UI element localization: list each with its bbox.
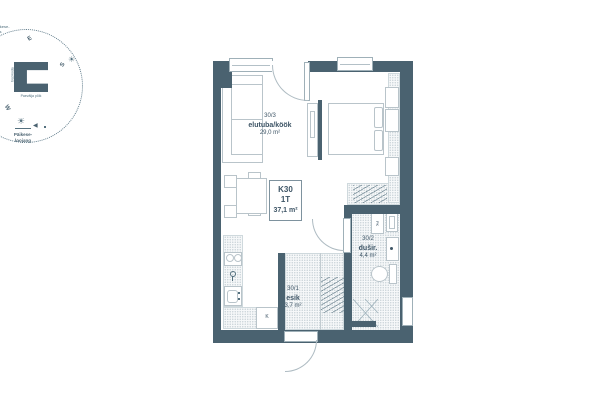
sunrise-label: Päikese- tõus [0, 24, 20, 34]
room-name: dušir. [348, 244, 388, 253]
sink-tap-dot [238, 298, 240, 300]
bath-cabinet-inner [389, 216, 395, 229]
stove-burner [226, 254, 234, 262]
room-number: 30/3 [238, 113, 302, 121]
hall-label: 30/1 esik 3,7 m² [271, 286, 315, 311]
horizon-line [15, 128, 31, 129]
wall-tv-stub [318, 100, 322, 160]
fridge-label: K [256, 314, 278, 321]
bathroom-door-swing-arc [312, 219, 344, 251]
bath-sink-tap [390, 247, 393, 250]
wardrobe-cabinet [385, 87, 399, 108]
arrow-trail-dot [44, 126, 46, 128]
kitchen-faucet-icon [230, 271, 236, 277]
toilet-tank [389, 264, 397, 284]
room-name: esik [271, 294, 315, 303]
pillow [374, 107, 383, 128]
unit-type: 1T [270, 195, 301, 205]
sun-icon: ☀ [68, 55, 75, 64]
floorplan-page: Paevälja põik trepikoda Päikese- tõus E … [0, 0, 600, 400]
window-glass-line [340, 64, 370, 65]
pillow [374, 130, 383, 151]
washer-label: PK [375, 218, 380, 229]
closet-rail-lines [353, 185, 387, 203]
wardrobe-cabinet [385, 157, 399, 176]
living-room-label: 30/3 elutuba/köök 29,0 m² [238, 113, 302, 138]
wall-bath-top [344, 205, 400, 214]
sunset-label: Päikese- loojang [2, 132, 44, 145]
room-name: elutuba/köök [238, 121, 302, 130]
room-area: 3,7 m² [271, 303, 315, 311]
tv-unit-inner [310, 111, 315, 138]
stair-label: trepikoda [11, 63, 16, 87]
toilet-bowl [371, 266, 388, 282]
sink-basin [227, 290, 238, 303]
washing-machine: PK [371, 213, 384, 234]
wall-left [213, 61, 221, 330]
room-area: 4,4 m² [348, 253, 388, 261]
shower-step [352, 321, 376, 327]
room-area: 29,0 m² [238, 130, 302, 138]
unit-label-box: K30 1T 37,1 m² [269, 180, 302, 221]
sunset-icon: ☀ [15, 118, 30, 127]
dining-table [236, 178, 267, 214]
bedroom-window [337, 57, 373, 71]
wardrobe-cabinet [385, 109, 399, 132]
stove-burner [234, 254, 242, 262]
bathroom-wall-niche [402, 297, 413, 326]
living-window [229, 58, 273, 72]
sink-tap-dot [238, 292, 240, 294]
shower-room-label: 30/2 dušir. 4,4 m² [348, 236, 388, 261]
window-glass-line [232, 65, 270, 66]
room-number: 30/2 [348, 236, 388, 244]
unit-area: 37,1 m² [270, 206, 301, 215]
sunset-arrow-icon: ◀ [33, 122, 38, 129]
room-number: 30/1 [271, 286, 315, 294]
hall-wardrobe-rail-lines [321, 277, 344, 313]
kitchen-faucet-icon [232, 276, 233, 281]
unit-code: K30 [270, 185, 301, 195]
balcony-door-swing-arc [272, 65, 308, 101]
entry-door-swing-arc [285, 340, 317, 372]
building-label: Paevälja põik [8, 94, 54, 98]
